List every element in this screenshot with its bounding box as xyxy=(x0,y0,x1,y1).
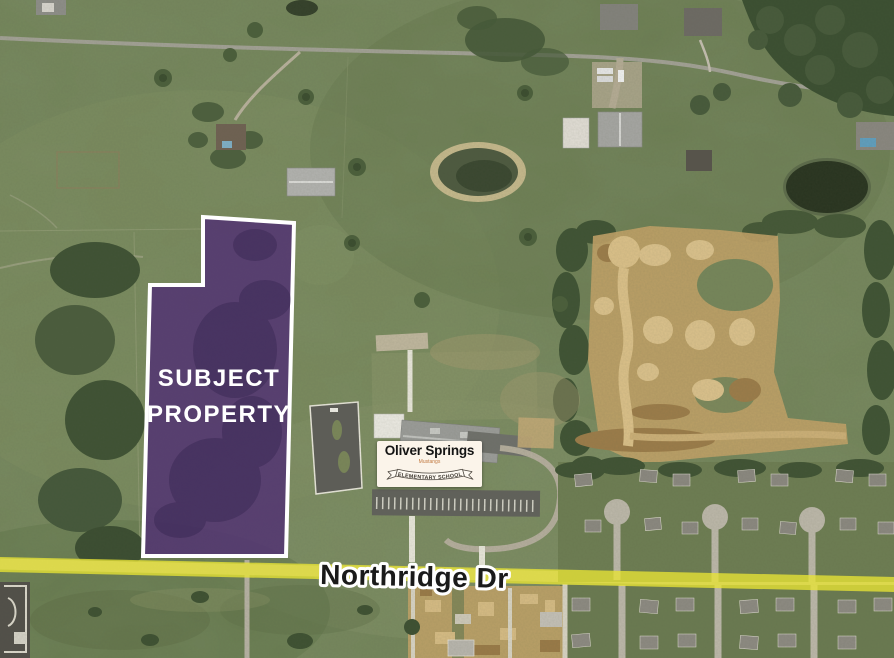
school-ribbon: ELEMENTARY SCHOOL xyxy=(384,465,476,486)
subject-property-line1: SUBJECT xyxy=(145,361,293,397)
aerial-map: Northridge Dr SUBJECT PROPERTY Oliver Sp… xyxy=(0,0,894,658)
road-label: Northridge Dr xyxy=(320,559,509,594)
school-badge: Oliver Springs Mustangs ELEMENTARY SCHOO… xyxy=(377,441,482,487)
annotation-overlay: Northridge Dr xyxy=(0,0,894,658)
school-name-label: Oliver Springs xyxy=(385,444,474,458)
subject-property-label: SUBJECT PROPERTY xyxy=(145,361,293,433)
subject-property-line2: PROPERTY xyxy=(145,397,293,433)
